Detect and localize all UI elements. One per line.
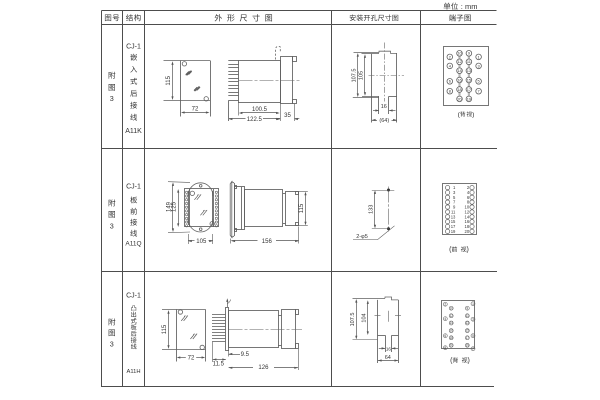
svg-text:(: ( [458,111,461,118]
svg-text:11: 11 [467,59,471,64]
svg-text:CJ-1: CJ-1 [126,44,141,51]
svg-text:(64): (64) [379,118,389,124]
svg-text:12: 12 [457,59,461,64]
svg-text:19: 19 [466,343,470,347]
svg-text:6: 6 [444,334,446,338]
svg-text:3: 3 [110,222,114,231]
svg-text:9: 9 [466,306,468,310]
svg-text:CJ-1: CJ-1 [126,292,141,299]
svg-text::: : [461,2,463,11]
svg-text:104: 104 [361,313,367,322]
svg-text:8: 8 [444,346,446,350]
svg-text:105: 105 [196,239,207,245]
svg-text:16: 16 [386,346,392,351]
svg-text:9: 9 [468,51,470,56]
svg-text:105: 105 [359,71,365,80]
svg-text:115: 115 [299,203,305,213]
svg-text:5: 5 [472,334,474,338]
svg-text:1: 1 [478,54,480,59]
svg-text:CJ-1: CJ-1 [126,184,141,191]
svg-text:16: 16 [457,77,461,82]
svg-text:A11Q: A11Q [125,241,141,248]
svg-text:1: 1 [472,302,474,306]
svg-text:115: 115 [162,324,168,334]
svg-text:13: 13 [467,68,471,73]
svg-text:): ) [472,111,474,118]
svg-text:133: 133 [369,205,375,214]
svg-text:20: 20 [449,343,453,347]
svg-text:A11H: A11H [126,369,140,375]
svg-text:156: 156 [262,239,273,245]
svg-text:17: 17 [467,87,471,92]
svg-text:2: 2 [444,302,446,306]
svg-text:(: ( [450,358,453,365]
svg-text:6: 6 [449,79,451,84]
svg-text:mm: mm [465,2,478,11]
svg-text:18: 18 [449,336,453,340]
svg-text:126: 126 [258,365,269,371]
svg-text:125: 125 [172,201,178,212]
svg-text:2: 2 [449,54,451,59]
svg-text:107.5: 107.5 [351,69,357,83]
svg-text:115: 115 [166,75,172,85]
svg-text:72: 72 [188,356,195,362]
svg-text:20: 20 [465,229,470,234]
svg-text:14: 14 [449,321,453,325]
svg-text:9.5: 9.5 [241,352,250,358]
svg-text:10: 10 [449,306,453,310]
svg-text:100.5: 100.5 [252,107,268,113]
svg-text:15: 15 [466,329,470,333]
svg-text:4: 4 [444,317,446,321]
svg-text:15: 15 [467,77,471,82]
svg-text:3: 3 [478,63,480,68]
svg-text:16: 16 [381,104,387,110]
svg-text:13: 13 [466,321,470,325]
svg-text:3: 3 [110,94,114,103]
svg-text:8: 8 [449,89,451,94]
svg-text:3: 3 [110,340,114,349]
svg-text:19: 19 [451,229,456,234]
svg-text:): ) [467,247,469,254]
svg-text:122.5: 122.5 [247,117,263,123]
svg-text:7: 7 [472,347,474,351]
svg-text:19: 19 [467,96,471,101]
svg-text:11.5: 11.5 [213,361,225,367]
svg-text:18: 18 [457,87,461,92]
svg-text:3: 3 [472,317,474,321]
svg-text:72: 72 [192,106,199,112]
svg-text:): ) [468,358,470,365]
svg-text:12: 12 [449,314,453,318]
svg-text:5: 5 [478,79,480,84]
svg-text:107.5: 107.5 [350,313,356,327]
svg-text:16: 16 [449,329,453,333]
svg-text:7: 7 [478,89,480,94]
svg-text:(: ( [449,247,452,254]
svg-text:35: 35 [284,113,291,119]
svg-text:2-φ5: 2-φ5 [356,234,368,240]
svg-text:64: 64 [385,355,391,361]
svg-text:17: 17 [466,336,470,340]
svg-text:11: 11 [466,314,470,318]
svg-text:A11K: A11K [125,128,142,135]
